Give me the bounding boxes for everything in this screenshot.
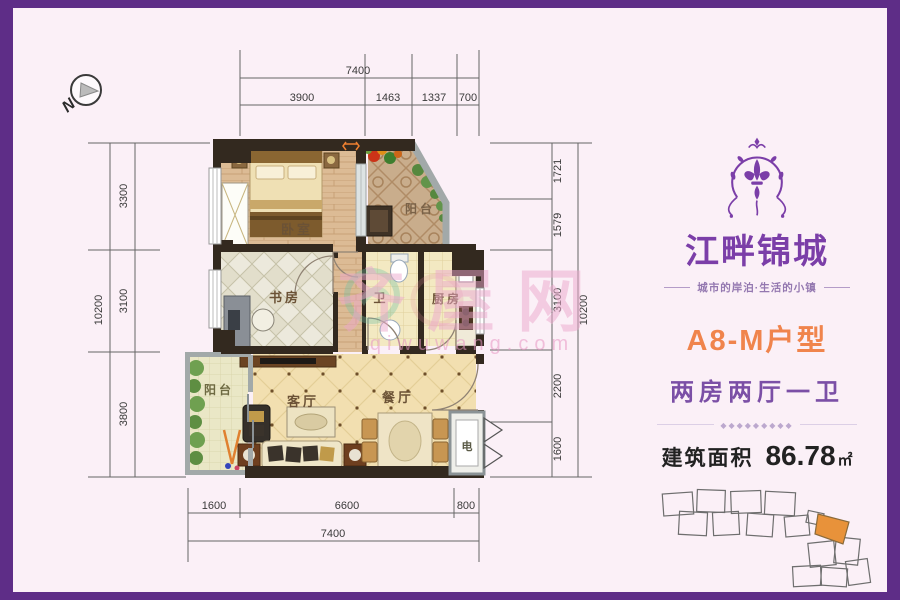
- dim-right-seg: 1600: [552, 437, 564, 461]
- sofa: [262, 441, 342, 469]
- tagline-left-dash: [664, 287, 690, 288]
- flourish-dot: [781, 215, 784, 218]
- keyplan-building: [792, 565, 821, 586]
- dim-bottom-seg: 800: [457, 500, 475, 512]
- keyplan-highlighted-unit: [815, 514, 849, 544]
- area-row: 建筑面积 86.78 ㎡: [661, 440, 852, 472]
- dim-bottom-seg: 1600: [202, 500, 226, 512]
- dim-left-seg: 3300: [118, 184, 130, 208]
- tagline-text: 城市的岸泊·生活的小镇: [697, 280, 817, 295]
- info-panel: 江畔锦城 城市的岸泊·生活的小镇 A8-M户型 两房两厅一卫 ◆◆◆◆◆◆◆◆◆…: [628, 136, 886, 588]
- room-label-study: 书房: [269, 290, 301, 305]
- dim-right-seg: 1721: [552, 159, 564, 183]
- fleur-band: [751, 181, 763, 184]
- wardrobe: [222, 183, 248, 247]
- dim-left-seg: 3800: [118, 402, 130, 426]
- dim-bottom-total: 7400: [321, 528, 345, 540]
- dim-top-seg: 1463: [376, 92, 400, 104]
- room-label-living: 客厅: [287, 394, 319, 409]
- site-key-plan: [635, 476, 880, 588]
- window: [209, 270, 221, 328]
- flourish-dot: [730, 215, 733, 218]
- dim-top-seg: 3900: [290, 92, 314, 104]
- room-label-bedroom: 卧室: [281, 222, 313, 237]
- area-unit: ㎡: [838, 449, 853, 470]
- dim-top-seg: 1337: [422, 92, 446, 104]
- wreath-leaf: [778, 171, 785, 180]
- watermark: 齐屋网 qiwuwang.com: [337, 264, 607, 355]
- watermark-en: qiwuwang.com: [370, 333, 574, 355]
- fleur-right-petal: [759, 171, 769, 180]
- lamp: [327, 156, 335, 164]
- section-divider: ◆◆◆◆◆◆◆◆◆: [687, 418, 827, 430]
- keyplan-building: [807, 541, 835, 568]
- dim-top-total: 7400: [346, 65, 370, 77]
- window: [356, 164, 366, 236]
- dim-right-seg: 1579: [552, 213, 564, 237]
- coffee-table: [287, 407, 335, 437]
- window: [209, 168, 221, 244]
- tagline-right-dash: [824, 287, 850, 288]
- area-value: 86.78: [765, 440, 835, 472]
- dim-lines-bottom: [188, 488, 479, 562]
- dim-top-seg: 700: [459, 92, 477, 104]
- brand-tagline: 城市的岸泊·生活的小镇: [657, 280, 857, 295]
- keyplan-building: [712, 511, 739, 535]
- area-label: 建筑面积: [661, 442, 753, 472]
- dim-left-total: 10200: [93, 295, 105, 326]
- crest-tail: [757, 201, 758, 216]
- keyplan-building: [746, 513, 773, 537]
- keyplan-building: [662, 492, 693, 516]
- wreath-leaf: [730, 171, 737, 180]
- fleur-left-petal: [744, 171, 754, 180]
- room-label-balcony-top: 阳台: [405, 201, 435, 216]
- compass: N: [59, 75, 101, 116]
- keyplan-building: [730, 490, 761, 513]
- keyplan-building: [820, 567, 847, 587]
- keyplan-building: [696, 490, 725, 513]
- tv-console: [240, 356, 336, 367]
- dim-bottom-seg: 6600: [335, 500, 359, 512]
- dim-left-seg: 3100: [118, 289, 130, 313]
- fleur-tail: [755, 186, 760, 200]
- unit-title: A8-M户型: [687, 317, 828, 359]
- brand-crest-icon: [702, 136, 812, 222]
- room-label-dining: 餐厅: [381, 390, 414, 405]
- unit-layout: 两房两厅一卫: [670, 372, 844, 407]
- fleur-center-petal: [754, 159, 760, 181]
- keyplan-building: [764, 491, 795, 516]
- watermark-cn: 齐屋网: [337, 264, 607, 340]
- room-label-elec: 电: [462, 439, 473, 453]
- divider-diamonds: ◆◆◆◆◆◆◆◆◆: [714, 421, 799, 430]
- dim-right-seg: 2200: [552, 374, 564, 398]
- shaft-double-door: [484, 418, 502, 468]
- keyplan-building: [784, 515, 810, 537]
- room-label-balcony-bottom: 阳台: [204, 382, 234, 397]
- page-frame: 卧室 阳台 书房 卫 厨房 客厅 餐厅 阳台 电 7400 3900 1463 …: [0, 0, 900, 600]
- electrical-shaft: [450, 412, 502, 474]
- brand-name: 江畔锦城: [685, 224, 829, 273]
